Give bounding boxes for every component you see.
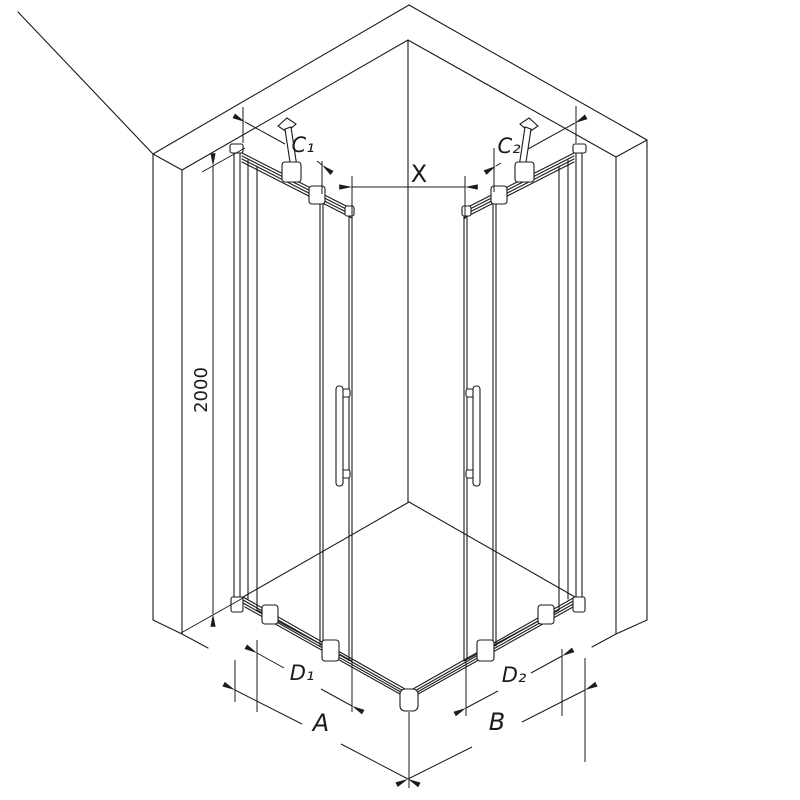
c2-label: C₂ <box>497 134 521 158</box>
c1-label: C₁ <box>291 133 314 157</box>
x-label: X <box>411 160 427 188</box>
dimensions: 2000 C₁ C₂ X D₁ <box>181 106 585 788</box>
d1-label: D₁ <box>290 661 315 685</box>
left-glass-assembly <box>230 118 354 661</box>
right-wall <box>408 5 647 647</box>
tray-corner-foot <box>400 689 418 711</box>
left-brace-clamp <box>282 162 301 182</box>
technical-drawing-page: 2000 C₁ C₂ X D₁ <box>0 0 800 800</box>
right-glass-assembly <box>462 118 586 661</box>
right-profile-foot <box>573 597 585 612</box>
right-door-hanger <box>491 186 507 204</box>
left-rail-end-cap <box>345 206 354 216</box>
tray-back-left-edge <box>243 502 409 597</box>
left-profile-cap <box>230 144 243 153</box>
left-door-handle <box>336 386 343 486</box>
right-bottom-roller <box>477 640 494 661</box>
tray-back-right-edge <box>409 502 575 597</box>
a-label: A <box>311 709 329 737</box>
walls <box>18 5 647 648</box>
height-label: 2000 <box>191 367 212 413</box>
b-label: B <box>489 708 505 736</box>
dimension-height-2000: 2000 <box>181 148 245 633</box>
left-door-hanger <box>309 186 325 204</box>
corner-shower-enclosure-drawing: 2000 C₁ C₂ X D₁ <box>0 0 800 800</box>
left-bottom-roller <box>322 640 339 661</box>
left-bottom-guide <box>262 605 278 624</box>
d2-label: D₂ <box>502 663 527 687</box>
right-brace-clamp <box>515 162 534 182</box>
right-profile-cap <box>573 144 586 153</box>
right-door-handle <box>473 386 480 486</box>
dimension-a: A <box>235 660 408 779</box>
right-rail-end-cap <box>462 206 471 216</box>
right-bottom-guide <box>538 605 554 624</box>
